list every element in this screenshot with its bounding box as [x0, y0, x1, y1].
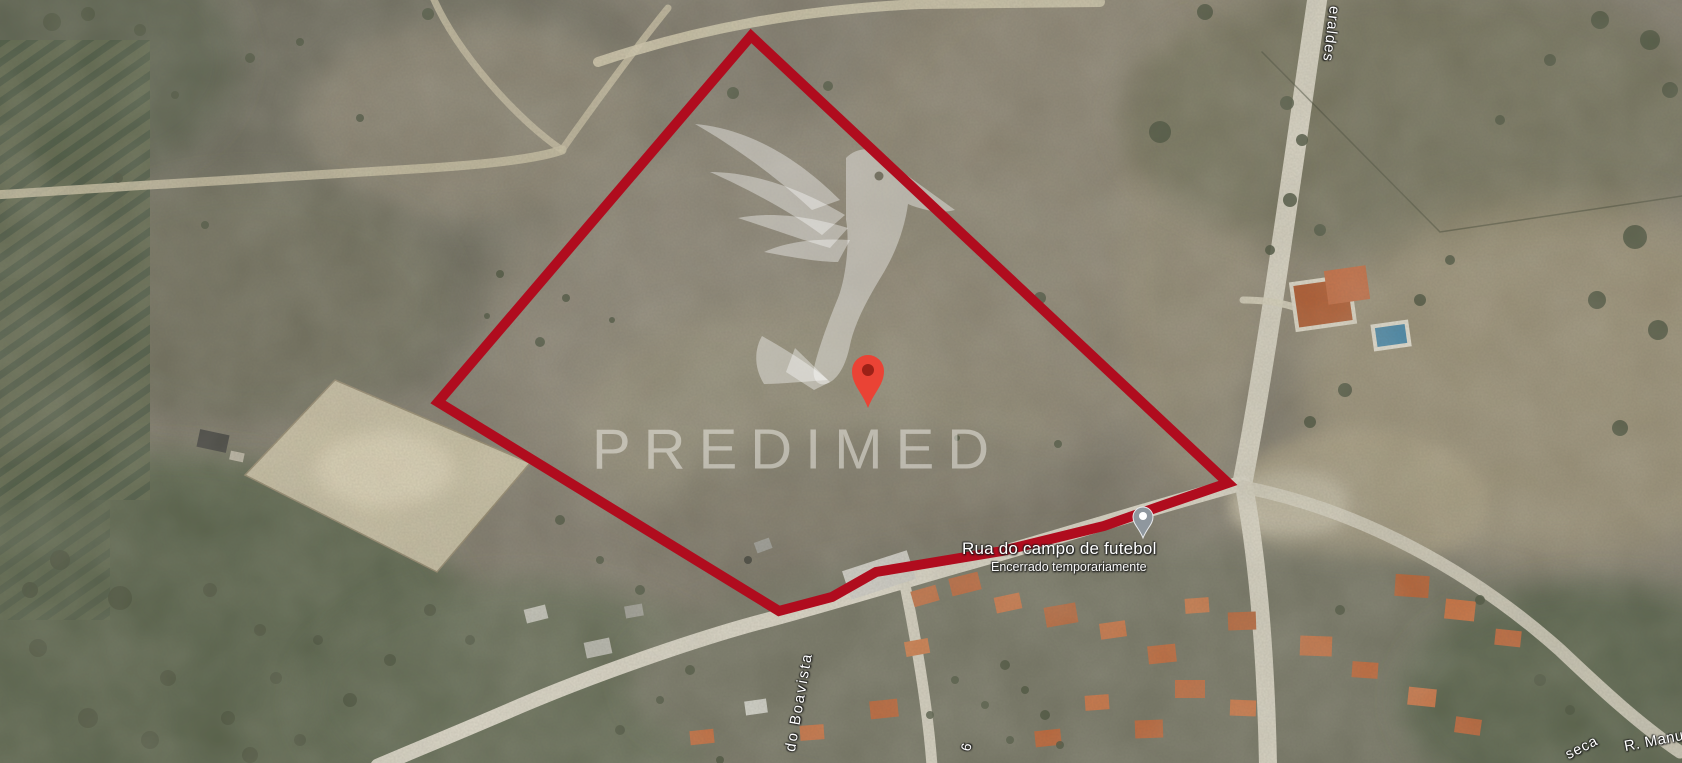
aerial-imagery [0, 0, 1682, 763]
map-canvas[interactable]: PREDIMED Rua do campo de futebol Encerra… [0, 0, 1682, 763]
street-label-campo-de-futebol: Rua do campo de futebol [962, 539, 1157, 559]
closed-status-label: Encerrado temporariamente [991, 560, 1147, 574]
bird-eye [875, 172, 884, 181]
watermark-brand: PREDIMED [592, 417, 1002, 482]
